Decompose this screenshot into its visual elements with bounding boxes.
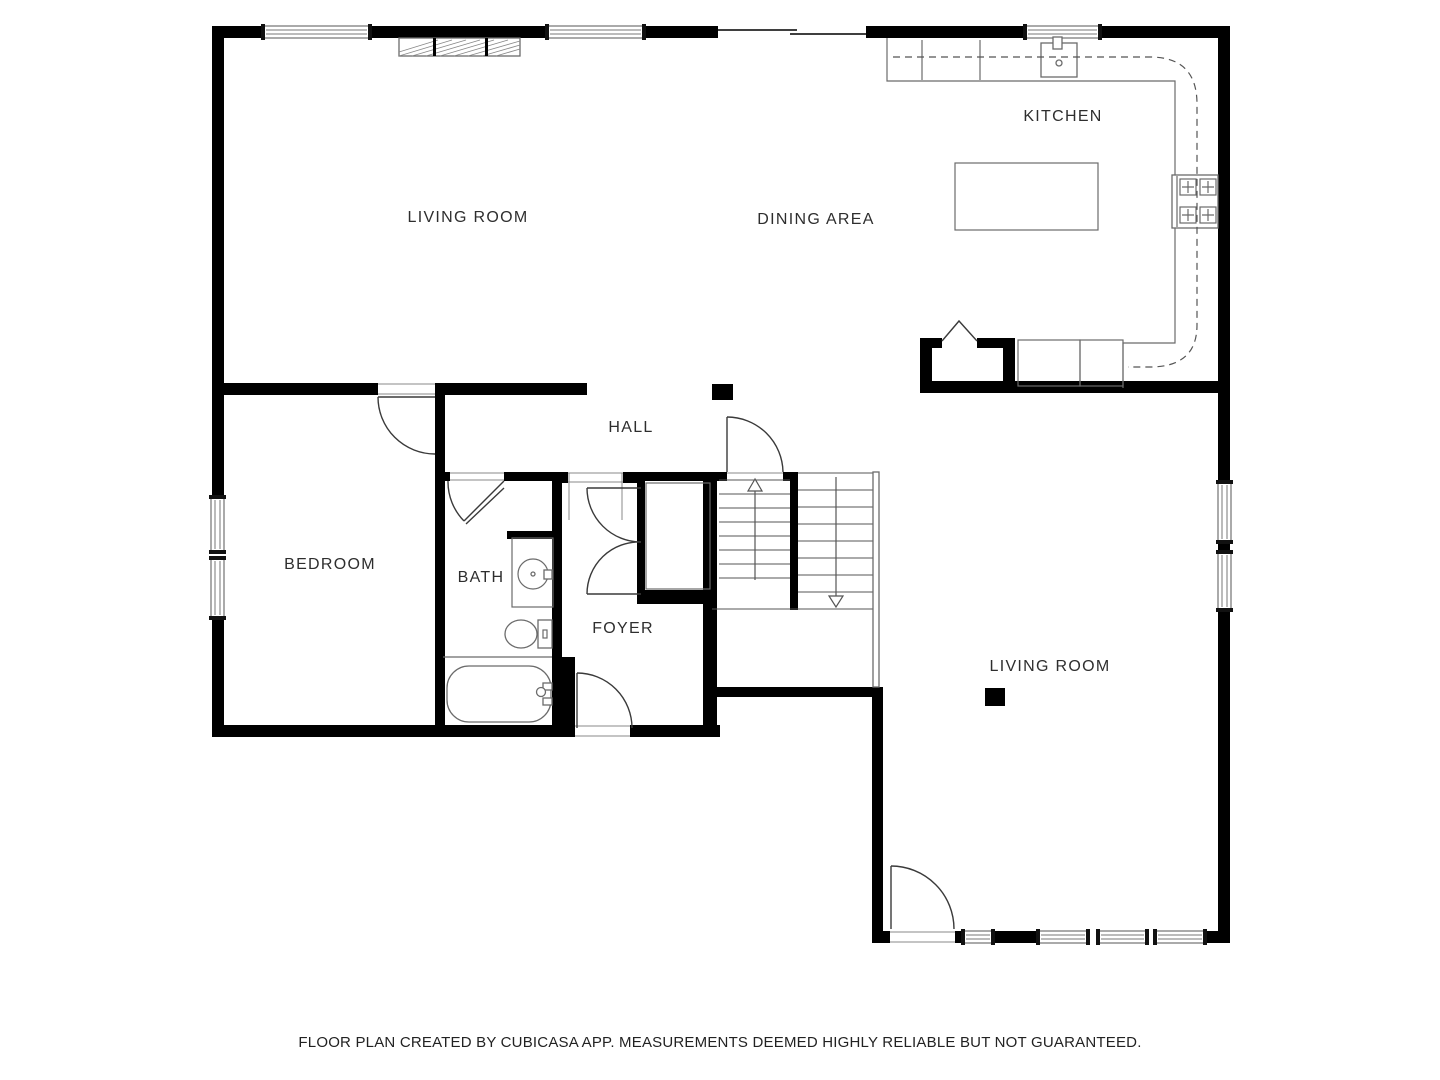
stove-icon: [1172, 175, 1218, 228]
room-label-bath: BATH: [458, 569, 505, 587]
stair-railing: [873, 472, 879, 687]
door-openings: [378, 382, 955, 944]
floor-plan-drawing: [0, 0, 1440, 1080]
kitchen-counter: [887, 38, 1175, 388]
kitchen-cabinet: [1080, 340, 1123, 386]
bath-fixtures: [443, 538, 553, 722]
stair-closet: [646, 483, 710, 589]
window-living-lower-right-1: [1216, 480, 1233, 544]
windows: [209, 24, 1233, 945]
stairs-up-flight: [719, 479, 790, 580]
stairs-down-flight: [798, 473, 873, 607]
basement-stairs-door: [727, 417, 783, 472]
disclaimer-text: FLOOR PLAN CREATED BY CUBICASA APP. MEAS…: [0, 1034, 1440, 1051]
room-label-bedroom: BEDROOM: [284, 556, 376, 574]
doors: [378, 321, 977, 929]
front-door-opening: [575, 724, 630, 738]
room-label-dining-area: DINING AREA: [757, 211, 874, 229]
room-label-foyer: FOYER: [592, 620, 654, 638]
front-entry-door: [577, 673, 632, 728]
interior-walls: [212, 338, 1230, 737]
bedroom-door: [378, 397, 435, 454]
window-bedroom-1: [209, 495, 226, 554]
top-wall-thin-section: [718, 30, 866, 34]
kitchen-sink-icon: [1041, 37, 1077, 77]
window-dining-top: [545, 24, 646, 40]
stairs: [646, 472, 879, 687]
bath-vanity-sink-icon: [512, 538, 553, 607]
support-post: [985, 688, 1005, 706]
room-label-kitchen: KITCHEN: [1023, 108, 1102, 126]
window-bedroom-2: [209, 556, 226, 620]
toilet-icon: [505, 620, 552, 648]
window-living-lower-right-2: [1216, 550, 1233, 612]
pantry-fold-door: [942, 321, 977, 341]
foyer-entry-opening: [568, 471, 623, 520]
bath-door: [448, 481, 504, 524]
bath-door-opening: [450, 471, 504, 482]
room-label-living-room-lower: LIVING ROOM: [990, 658, 1111, 676]
window-living-lower-bottom-3: [1153, 929, 1207, 945]
upper-cabinets-dashed: [893, 57, 1197, 367]
patio-door-opening: [890, 930, 955, 944]
kitchen-fixtures: [887, 37, 1218, 388]
bedroom-door-opening: [378, 382, 435, 396]
window-living-lower-bottom-small: [961, 929, 995, 945]
fireplace-icon: [399, 38, 520, 56]
living-lower-exterior-door: [891, 866, 954, 929]
kitchen-island: [955, 163, 1098, 230]
foyer-closet-double-doors: [587, 488, 641, 594]
window-living-lower-bottom-1: [1036, 929, 1090, 945]
window-living-room-top: [261, 24, 372, 40]
window-living-lower-bottom-2: [1096, 929, 1149, 945]
kitchen-cabinet: [1018, 340, 1080, 386]
bathtub-icon: [447, 666, 552, 722]
room-label-hall: HALL: [608, 419, 653, 437]
floor-plan: LIVING ROOM DINING AREA KITCHEN HALL BED…: [0, 0, 1440, 1080]
room-label-living-room-upper: LIVING ROOM: [408, 209, 529, 227]
